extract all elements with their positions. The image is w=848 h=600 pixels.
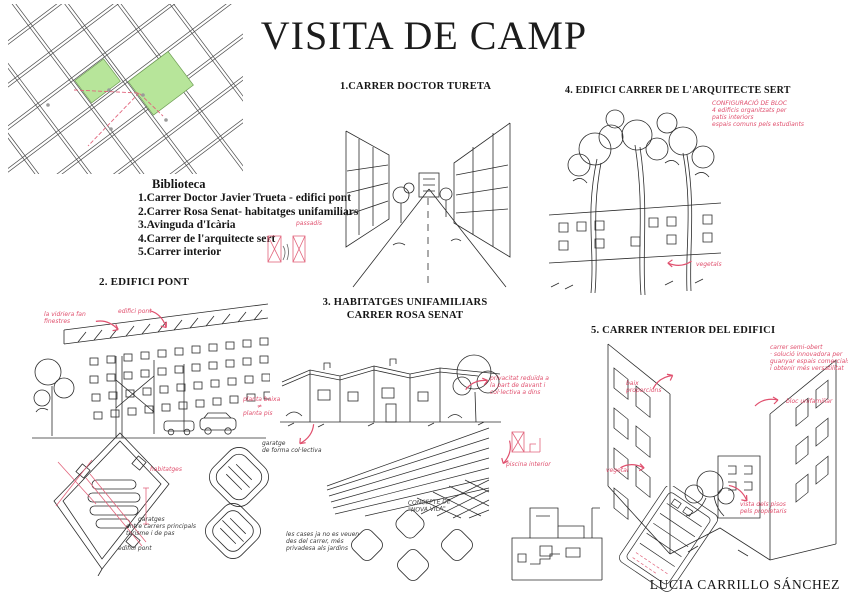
note-line: 4 edificis organitzats per xyxy=(712,107,804,114)
note-garage: garatge de forma col·lectiva xyxy=(262,440,322,454)
panel-1-title: 1.CARRER DOCTOR TURETA xyxy=(340,81,491,92)
note-concept: CONCEPTE DE "NOVA VILA" xyxy=(408,498,451,513)
panel-3-title-line2: CARRER ROSA SENAT xyxy=(320,309,490,322)
note-line: la vidriera fan xyxy=(44,311,86,318)
panel-3-title-line1: 3. HABITATGES UNIFAMILIARS xyxy=(320,296,490,309)
note-line: pels propietaris xyxy=(740,508,787,515)
note-streets: garatges entre carrers principals turism… xyxy=(126,516,196,537)
site-map-sketch xyxy=(8,4,243,174)
note-line: des del carrer, més xyxy=(286,538,359,545)
note-line: col·lectiva a dins xyxy=(490,389,549,396)
panel-2-title: 2. EDIFICI PONT xyxy=(99,276,189,288)
note-semi-open-street: carrer semi-obert · solució innovadora p… xyxy=(770,344,848,372)
author-signature: LUCIA CARRILLO SÁNCHEZ xyxy=(650,577,840,593)
note-passadis: passadís xyxy=(296,220,322,227)
street-perspective-sketch xyxy=(333,95,523,290)
note-line: garatge xyxy=(262,440,322,447)
note-line: garatges xyxy=(138,516,196,523)
note-houses-privacy: les cases ja no es veuen des del carrer,… xyxy=(286,531,359,552)
note-line: CONFIGURACIÓ DE BLOC xyxy=(712,100,804,107)
note-line: · solució innovadora per xyxy=(770,351,848,358)
note-privacy: privacitat reduïda a la part de davant i… xyxy=(490,375,549,396)
note-line: "NOVA VILA" xyxy=(408,505,451,513)
note-line: guanyar espais comercials xyxy=(770,358,848,365)
note-glass: la vidriera fan finestres xyxy=(44,311,86,325)
note-line: entre carrers principals xyxy=(126,523,196,530)
note-line: patis interiors xyxy=(712,114,804,121)
note-line: de forma col·lectiva xyxy=(262,447,322,454)
presentation-board: VISITA DE CAMP Biblioteca 1.Carrer Docto… xyxy=(0,0,848,600)
note-line: carrer semi-obert xyxy=(770,344,848,351)
note-line: les cases ja no es veuen xyxy=(286,531,359,538)
building-section-sketch xyxy=(500,468,608,586)
note-line: espais comuns pels estudiants xyxy=(712,121,804,128)
corridor-mini-sketch xyxy=(266,226,308,268)
note-block-config: CONFIGURACIÓ DE BLOC 4 edificis organitz… xyxy=(712,100,804,128)
panel-4-title: 4. EDIFICI CARRER DE L'ARQUITECTE SERT xyxy=(565,85,791,96)
note-pool: piscina interior xyxy=(506,461,551,468)
tile-pattern-sketch xyxy=(340,506,505,588)
note-line: privadesa als jardins xyxy=(286,545,359,552)
note-bridge-2: edifici pont xyxy=(118,545,152,552)
note-vegetals: vegetals xyxy=(696,261,722,268)
note-housing: habitatges xyxy=(150,466,182,473)
note-line: ≠ xyxy=(257,403,280,410)
annotation-arrow-icon xyxy=(754,395,780,409)
note-line: privacitat reduïda a xyxy=(490,375,549,382)
octagon-plan-sketch xyxy=(192,446,287,568)
map-green-block xyxy=(128,52,193,116)
note-line: planta pis xyxy=(243,410,280,417)
note-line: turisme i de pas xyxy=(126,530,196,537)
note-line: la part de davant i xyxy=(490,382,549,389)
note-floors: planta baixa ≠ planta pis xyxy=(243,396,280,417)
site-plan-diamond-sketch xyxy=(50,428,185,576)
note-line: i obtenir més versatilitat xyxy=(770,365,848,372)
panel-5-title: 5. CARRER INTERIOR DEL EDIFICI xyxy=(591,325,775,336)
note-line: finestres xyxy=(44,318,86,325)
note-unifamiliar: bloc unifamiliar xyxy=(786,398,832,405)
note-line: planta baixa xyxy=(243,396,280,403)
panel-3-title: 3. HABITATGES UNIFAMILIARS CARRER ROSA S… xyxy=(320,296,490,322)
